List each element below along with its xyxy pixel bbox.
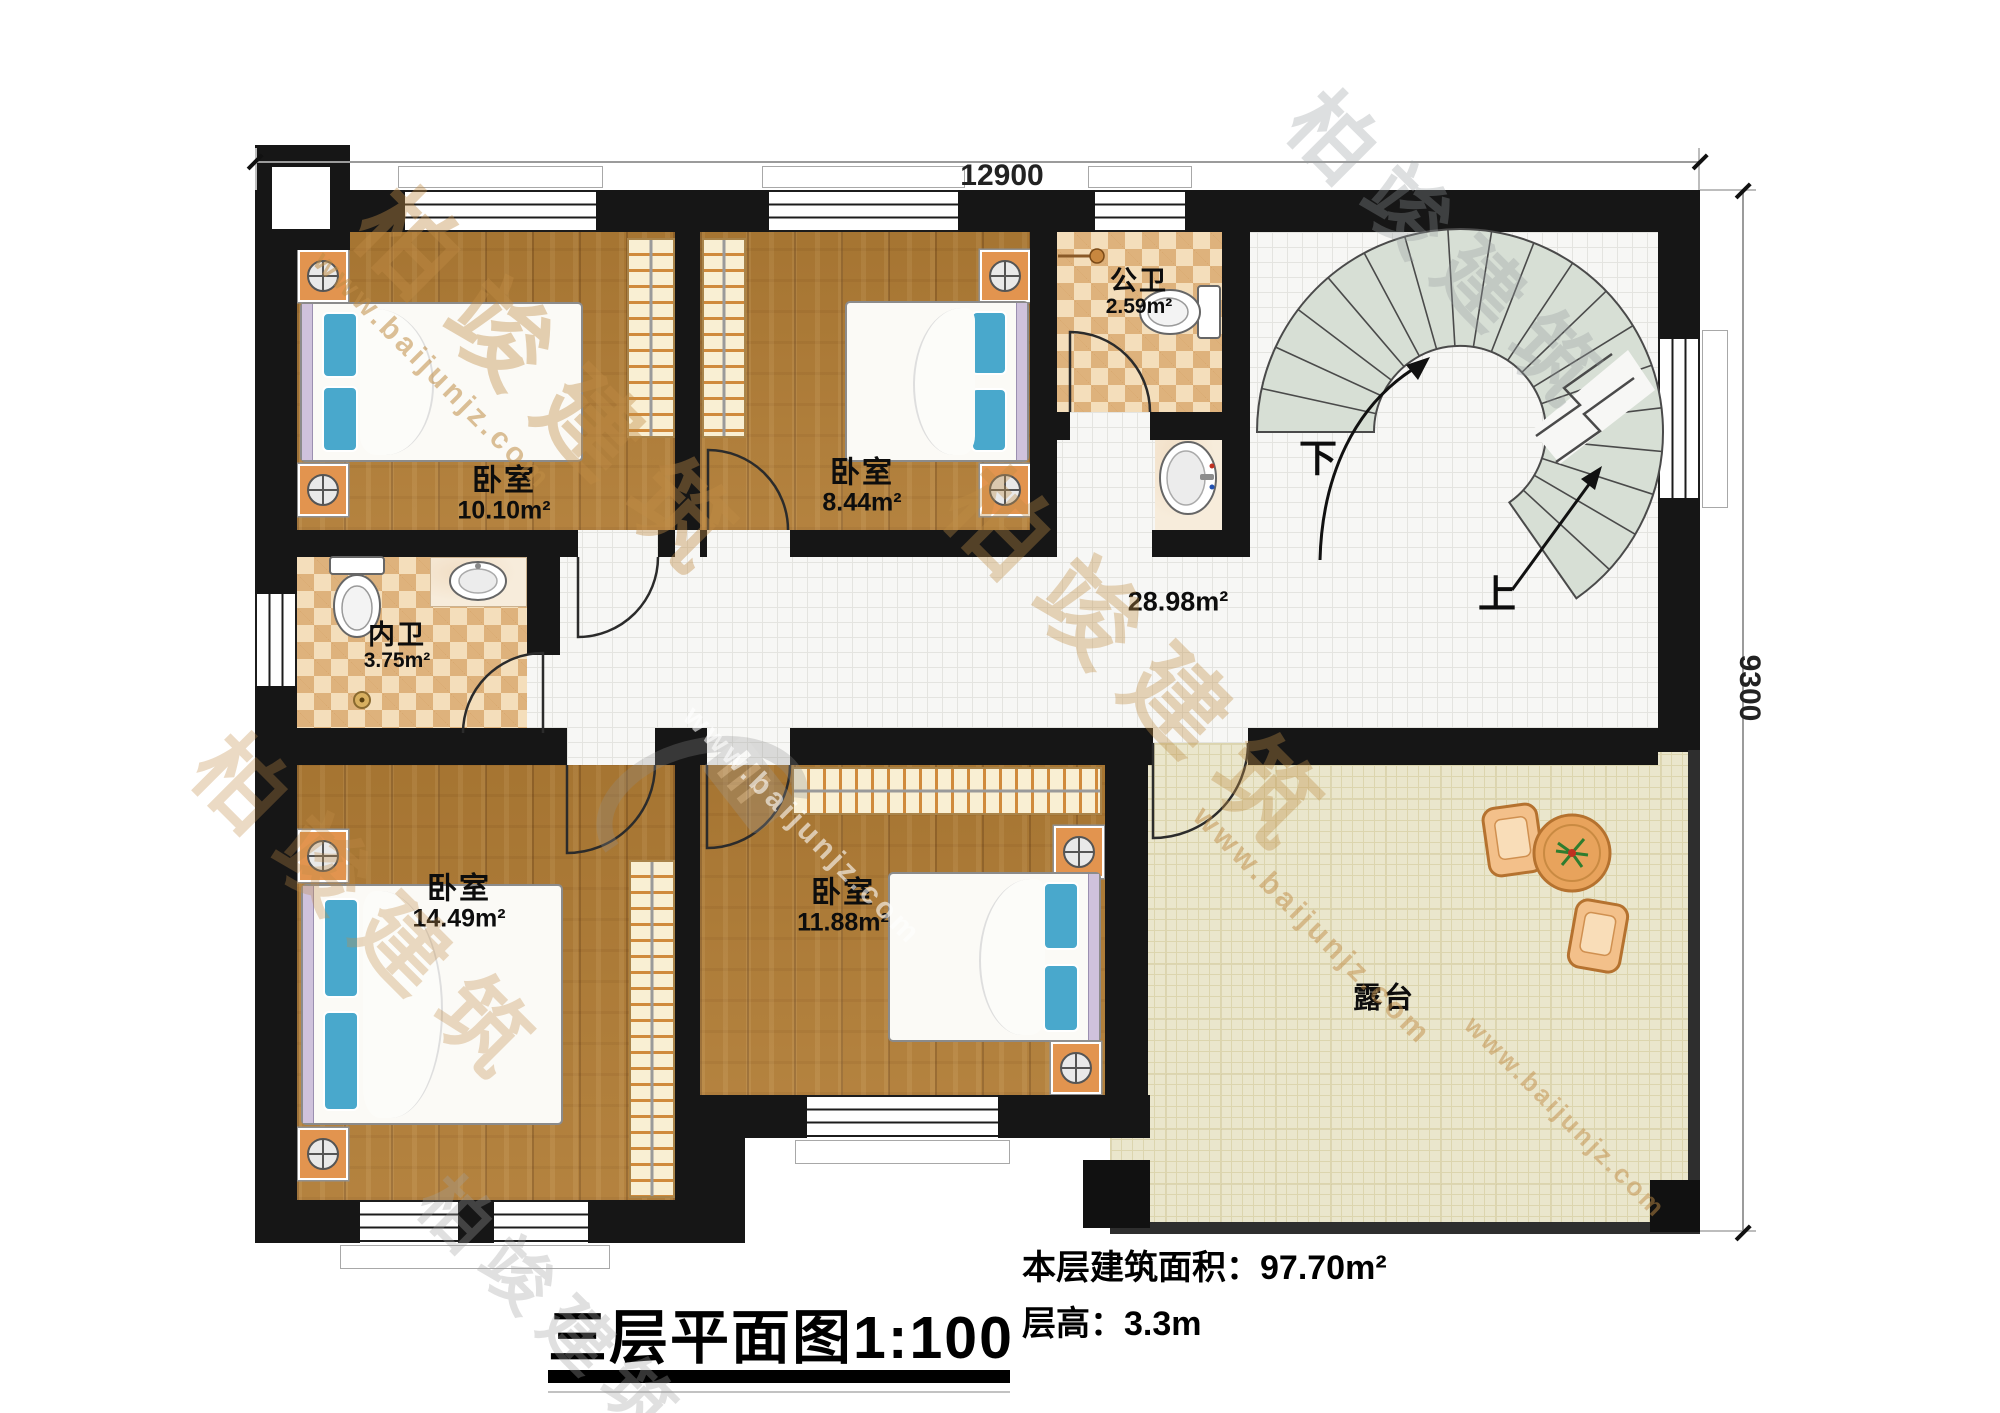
extension-line [1698,148,1700,190]
wall [700,1095,745,1200]
room-label-bedroom-top-middle: 卧室8.44m² [822,457,901,516]
stair-up-label: 上 [1478,564,1516,619]
terrace-railing-right [1688,750,1700,1232]
window [403,190,598,232]
lamp-icon [307,260,339,292]
lamp-icon [989,260,1021,292]
wall [700,530,707,557]
lamp-icon [307,474,339,506]
terrace-railing-bottom [1110,1222,1700,1234]
bedside-table [300,1130,346,1178]
lamp-icon [307,1138,339,1170]
wall [1105,728,1153,765]
wardrobe [702,238,746,438]
window-sill [1088,166,1192,188]
window [492,1200,590,1243]
wall [255,190,297,1243]
floor-plan-title: 三层平面图1:100 [548,1290,1014,1375]
room-label-hallway: 28.98m² [1128,587,1229,616]
column [1083,1160,1150,1228]
dimension-right-label: 9300 [1732,655,1766,722]
wardrobe [627,238,675,438]
bedside-table [982,252,1028,300]
floor-height-row: 层高：3.3m [1022,1296,1202,1345]
wall [1105,765,1148,1095]
wardrobe [629,860,675,1198]
window [1658,337,1700,500]
title-scale: 1:100 [853,1305,1014,1371]
lamp-icon [989,474,1021,506]
window-sill [398,166,603,188]
floor-area-row: 本层建筑面积：97.70m² [1022,1240,1387,1289]
bed [888,872,1101,1042]
wall [1248,728,1658,765]
wall [658,530,675,557]
wall [1030,232,1057,557]
wall [675,765,700,1243]
wall [1222,190,1250,557]
window-sill [795,1140,1010,1164]
public-bathroom-floor [1057,232,1222,412]
wall [598,190,767,232]
wall [745,1095,805,1138]
floor-plan-canvas: 12900 9300 卧室10.10m² 卧室8.44m² 公卫2.59m² 内… [0,0,2000,1413]
title-underline [548,1370,1010,1383]
window [1093,190,1187,232]
wall [590,1200,745,1243]
room-label-public-bathroom: 公卫2.59m² [1106,267,1173,319]
window-sill [762,166,965,188]
bedside-table [300,252,346,300]
lamp-icon [1063,836,1095,868]
wall [1150,412,1223,440]
window [767,190,960,232]
wall [1000,1095,1150,1138]
window-sill [340,1245,610,1269]
bedside-table [982,466,1028,514]
room-label-bedroom-bottom-left: 卧室14.49m² [412,873,505,932]
bedside-table [300,832,346,880]
bed [300,302,583,462]
room-label-inner-bathroom: 内卫3.75m² [364,621,431,673]
room-label-terrace: 露台 [1353,983,1415,1014]
lamp-icon [1060,1052,1092,1084]
wall [790,530,1030,557]
wall [255,728,567,765]
room-label-bedroom-bottom-mid: 卧室11.88m² [797,877,889,936]
title-underline-thin [548,1391,1010,1393]
chimney-flue [272,167,330,229]
wall [527,557,560,655]
window-sill [1702,330,1728,508]
wall [255,530,578,557]
wall [460,1200,492,1243]
wall [675,232,700,530]
column [1650,1180,1700,1232]
wall [655,728,707,765]
wall [255,1200,358,1243]
window [358,1200,460,1243]
dimension-top-label: 12900 [960,159,1043,193]
wardrobe [792,767,1102,815]
extension-line [1700,189,1756,191]
extension-line [255,148,257,190]
lamp-icon [307,840,339,872]
sink-nook-floor [1155,428,1222,530]
wall [960,190,1093,232]
wall [790,728,1105,765]
room-label-bedroom-top-left: 卧室10.10m² [457,465,550,524]
bed [845,301,1029,462]
window [255,592,297,688]
wall [1187,190,1700,232]
bathroom-counter [430,557,527,607]
bedside-table [1053,1044,1099,1092]
wall [1057,412,1070,440]
window [805,1095,1000,1138]
bedside-table [1056,828,1102,876]
stair-down-label: 下 [1299,428,1337,483]
bedside-table [300,466,346,514]
title-text: 三层平面图 [548,1305,853,1371]
